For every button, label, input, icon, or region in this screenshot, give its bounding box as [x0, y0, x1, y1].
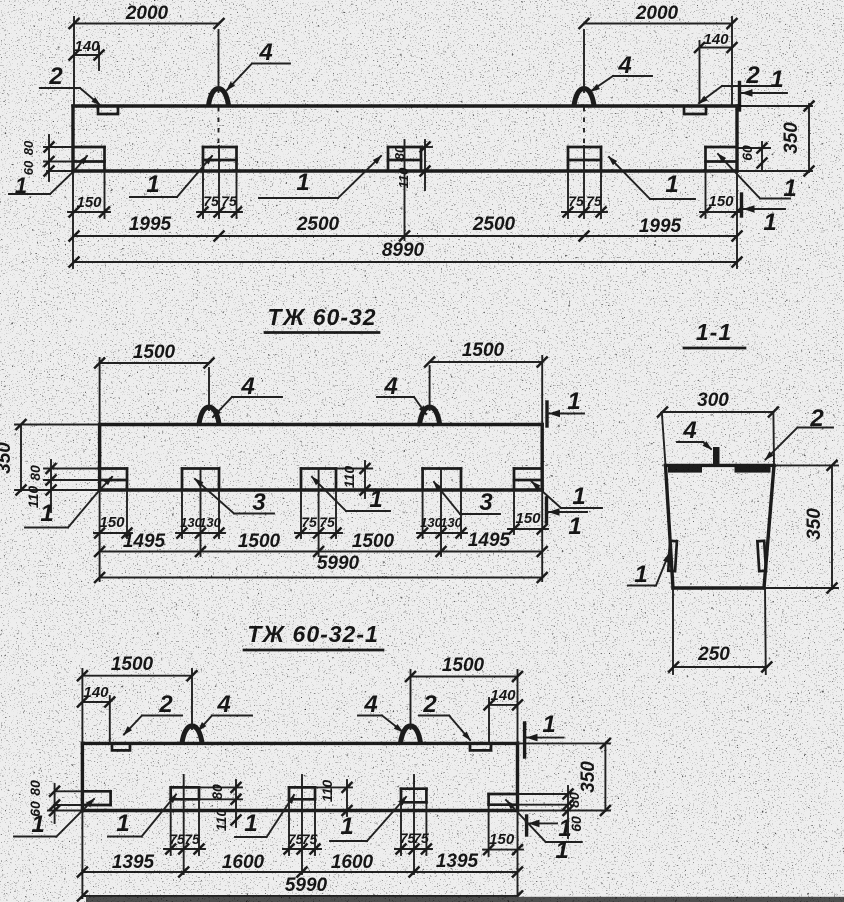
svg-text:2: 2 — [422, 691, 437, 718]
svg-text:80: 80 — [209, 784, 225, 800]
svg-text:80: 80 — [566, 792, 582, 808]
svg-text:75: 75 — [586, 193, 602, 209]
svg-text:110: 110 — [213, 809, 229, 832]
svg-text:4: 4 — [216, 691, 230, 718]
svg-text:75: 75 — [302, 831, 318, 847]
svg-text:1500: 1500 — [462, 340, 505, 361]
svg-text:1995: 1995 — [129, 214, 172, 235]
svg-text:1: 1 — [555, 837, 568, 864]
svg-text:75: 75 — [169, 831, 185, 847]
svg-text:4: 4 — [258, 39, 272, 66]
svg-text:1: 1 — [116, 810, 129, 837]
svg-text:60: 60 — [739, 145, 755, 161]
svg-text:1: 1 — [40, 500, 53, 527]
svg-text:75: 75 — [319, 514, 335, 530]
svg-text:140: 140 — [490, 687, 516, 704]
svg-text:8990: 8990 — [382, 240, 425, 261]
svg-text:130: 130 — [440, 515, 462, 530]
svg-text:140: 140 — [83, 684, 109, 701]
svg-text:75: 75 — [568, 193, 584, 209]
svg-text:150: 150 — [99, 514, 125, 531]
svg-text:1-1: 1-1 — [696, 319, 732, 345]
svg-text:80: 80 — [27, 465, 43, 481]
svg-text:250: 250 — [697, 644, 730, 665]
svg-text:4: 4 — [383, 373, 397, 400]
svg-text:150: 150 — [708, 193, 734, 210]
svg-text:140: 140 — [74, 38, 100, 55]
svg-text:1: 1 — [763, 209, 776, 236]
svg-text:2: 2 — [48, 63, 63, 90]
svg-text:ТЖ 60-32: ТЖ 60-32 — [267, 304, 376, 330]
svg-text:60: 60 — [568, 816, 584, 832]
svg-text:150: 150 — [515, 510, 541, 527]
svg-text:1995: 1995 — [639, 216, 682, 237]
svg-text:1500: 1500 — [442, 655, 485, 676]
svg-text:1495: 1495 — [468, 530, 511, 551]
svg-text:1: 1 — [568, 513, 581, 540]
svg-text:1: 1 — [572, 483, 585, 510]
svg-text:1: 1 — [770, 66, 783, 93]
svg-text:1395: 1395 — [112, 852, 155, 873]
svg-text:1: 1 — [340, 813, 353, 840]
svg-text:2: 2 — [158, 691, 173, 718]
svg-text:110: 110 — [341, 466, 357, 489]
svg-text:80: 80 — [392, 145, 407, 160]
svg-text:1500: 1500 — [133, 342, 176, 363]
svg-text:110: 110 — [25, 486, 41, 509]
svg-text:3: 3 — [252, 489, 266, 516]
svg-text:350: 350 — [804, 508, 825, 540]
svg-text:4: 4 — [617, 52, 631, 79]
svg-text:5990: 5990 — [285, 875, 328, 896]
svg-text:130: 130 — [199, 515, 221, 530]
svg-text:1: 1 — [296, 169, 309, 196]
svg-text:75: 75 — [203, 193, 219, 209]
svg-text:1495: 1495 — [123, 531, 166, 552]
svg-text:2000: 2000 — [125, 3, 169, 24]
svg-text:1: 1 — [244, 810, 257, 837]
svg-text:75: 75 — [184, 831, 200, 847]
svg-text:75: 75 — [221, 193, 237, 209]
svg-text:1: 1 — [567, 388, 580, 415]
svg-text:80: 80 — [21, 140, 36, 155]
svg-text:150: 150 — [489, 831, 515, 848]
svg-text:3: 3 — [479, 489, 493, 516]
svg-text:80: 80 — [27, 780, 43, 796]
svg-text:140: 140 — [703, 31, 729, 48]
svg-text:300: 300 — [697, 390, 729, 411]
svg-text:1: 1 — [542, 711, 555, 738]
svg-text:1600: 1600 — [331, 852, 374, 873]
svg-text:1: 1 — [369, 486, 382, 513]
svg-text:350: 350 — [781, 122, 802, 154]
svg-text:75: 75 — [301, 514, 317, 530]
svg-text:1500: 1500 — [111, 654, 154, 675]
svg-text:4: 4 — [363, 691, 377, 718]
svg-text:350: 350 — [0, 442, 15, 474]
svg-text:2: 2 — [745, 62, 760, 89]
svg-text:2000: 2000 — [635, 3, 679, 24]
svg-text:75: 75 — [413, 830, 429, 846]
svg-text:2500: 2500 — [296, 214, 340, 235]
svg-text:350: 350 — [578, 761, 599, 793]
svg-text:1: 1 — [31, 811, 44, 838]
svg-text:1: 1 — [634, 561, 647, 588]
svg-text:1500: 1500 — [238, 531, 281, 552]
svg-text:ТЖ 60-32-1: ТЖ 60-32-1 — [247, 621, 379, 647]
svg-text:1: 1 — [665, 171, 678, 198]
svg-text:5990: 5990 — [317, 553, 360, 574]
svg-text:4: 4 — [682, 417, 696, 444]
svg-text:1500: 1500 — [352, 531, 395, 552]
svg-text:2500: 2500 — [472, 214, 516, 235]
svg-text:1395: 1395 — [436, 851, 479, 872]
svg-text:1: 1 — [146, 171, 159, 198]
svg-text:110: 110 — [396, 167, 411, 188]
svg-text:4: 4 — [240, 373, 254, 400]
svg-text:60: 60 — [21, 160, 36, 175]
svg-text:150: 150 — [76, 194, 102, 211]
svg-text:1600: 1600 — [222, 852, 265, 873]
svg-text:110: 110 — [319, 780, 335, 803]
